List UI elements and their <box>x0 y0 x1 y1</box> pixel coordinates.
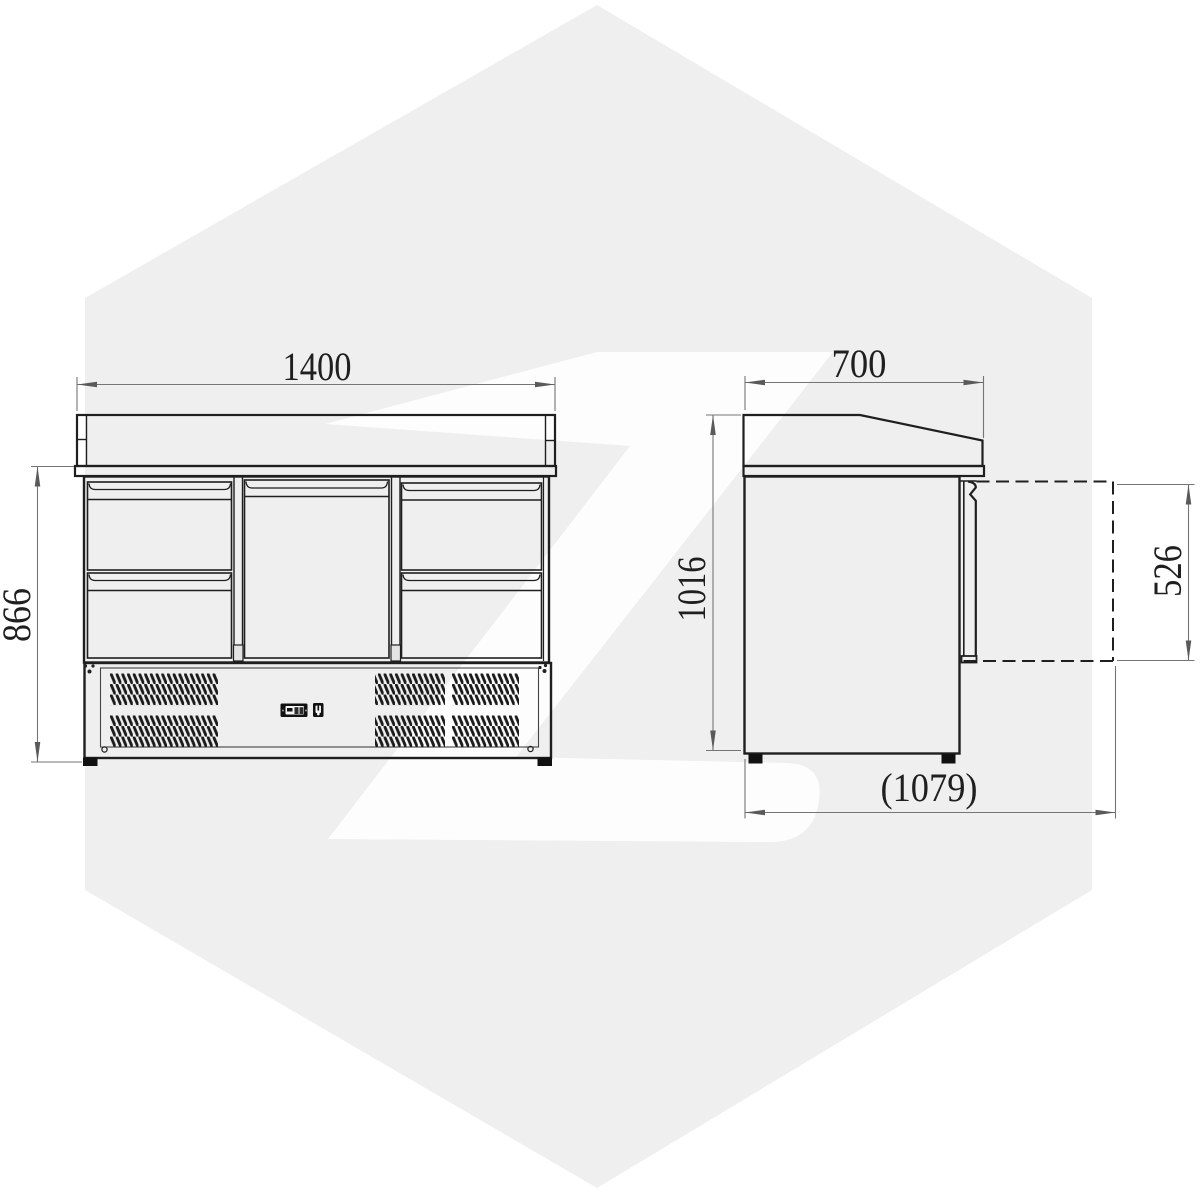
svg-text:1016: 1016 <box>669 557 714 622</box>
svg-text:700: 700 <box>832 341 887 386</box>
svg-text:866: 866 <box>0 588 39 642</box>
svg-text:(1079): (1079) <box>881 765 978 810</box>
svg-text:526: 526 <box>1145 545 1190 597</box>
svg-text:1400: 1400 <box>283 344 352 389</box>
